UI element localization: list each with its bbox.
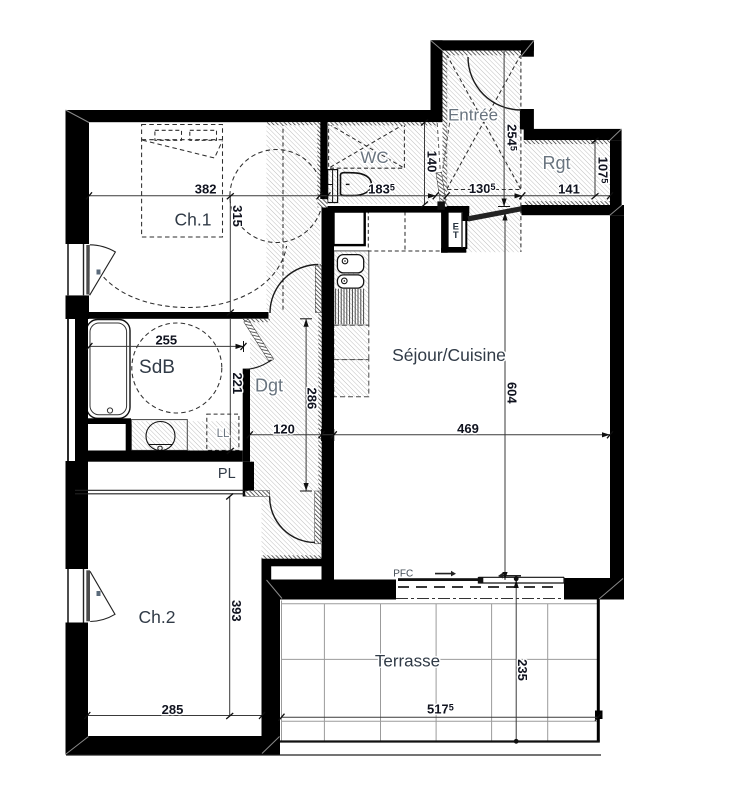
svg-text:PL: PL	[218, 466, 236, 482]
svg-text:285: 285	[162, 702, 184, 717]
svg-text:Terrasse: Terrasse	[375, 652, 440, 671]
svg-text:SdB: SdB	[139, 357, 175, 378]
svg-text:604: 604	[505, 382, 520, 404]
svg-text:T: T	[453, 230, 459, 241]
svg-text:315: 315	[230, 205, 245, 227]
svg-text:Dgt: Dgt	[255, 375, 283, 395]
svg-text:LL: LL	[217, 428, 230, 440]
svg-text:120: 120	[273, 422, 295, 437]
svg-text:Séjour/Cuisine: Séjour/Cuisine	[392, 345, 506, 365]
svg-text:PFC: PFC	[393, 569, 413, 580]
svg-text:255: 255	[155, 333, 177, 348]
svg-text:141: 141	[558, 182, 580, 197]
svg-text:469: 469	[457, 421, 479, 436]
svg-text:WC: WC	[360, 148, 388, 167]
svg-text:382: 382	[195, 181, 217, 196]
svg-text:235: 235	[515, 659, 530, 681]
svg-text:393: 393	[229, 600, 244, 622]
svg-text:Rgt: Rgt	[542, 153, 570, 173]
svg-text:221: 221	[230, 372, 245, 394]
svg-text:Ch.2: Ch.2	[139, 607, 176, 627]
svg-text:Ch.1: Ch.1	[175, 209, 212, 229]
svg-text:286: 286	[304, 388, 319, 410]
svg-text:Entrée: Entrée	[448, 106, 498, 125]
svg-text:140: 140	[424, 151, 439, 173]
